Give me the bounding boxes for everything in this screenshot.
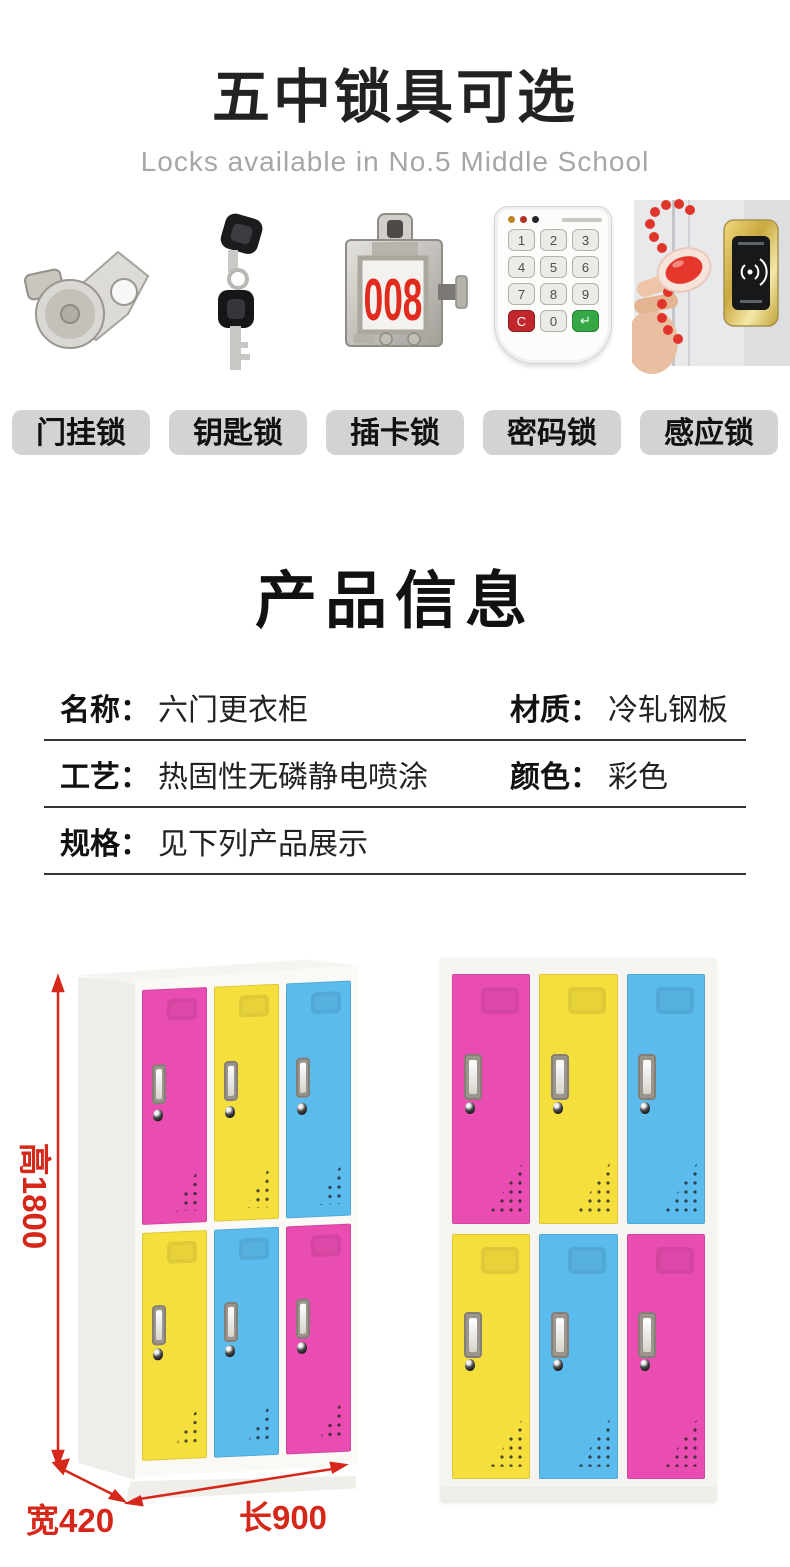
- info-cell-name: 名称： 六门更衣柜: [44, 685, 510, 729]
- info-row: 规格： 见下列产品展示: [44, 808, 746, 875]
- label-slot: [481, 1247, 519, 1274]
- vent-holes: [174, 1164, 201, 1212]
- dimension-height-label: 高1800: [13, 1136, 61, 1256]
- label-slot: [311, 1234, 341, 1257]
- keypad-key-↵: ↵: [572, 310, 599, 332]
- door-handle: [638, 1054, 656, 1100]
- locker-door-blue: [214, 1227, 279, 1458]
- locker-left-doors: [142, 981, 351, 1464]
- keypad-key-6: 6: [572, 256, 599, 278]
- label-slot: [167, 998, 197, 1021]
- lock-label-key: 钥匙锁: [169, 410, 307, 455]
- product-info-table: 名称： 六门更衣柜 材质： 冷轧钢板 工艺： 热固性无磷静电喷涂 颜色： 彩色: [0, 674, 790, 875]
- locks-section: 008 123456789C0↵: [0, 192, 790, 455]
- locker-door-blue: [286, 981, 351, 1219]
- label-slot: [239, 994, 269, 1017]
- vent-holes: [174, 1401, 201, 1448]
- locker-door-pink: [142, 987, 207, 1225]
- lockers-section: 高1800 宽420 长900: [0, 957, 790, 1567]
- lock-label-keypad: 密码锁: [483, 410, 621, 455]
- keypad-key-5: 5: [540, 256, 567, 278]
- door-handle: [464, 1312, 482, 1358]
- keypad-key-7: 7: [508, 283, 535, 305]
- keypad-lock-icon: 123456789C0↵: [474, 192, 632, 388]
- keyhole-icon: [465, 1359, 475, 1371]
- keyhole-icon: [640, 1102, 650, 1114]
- door-handle: [551, 1312, 569, 1358]
- label-slot: [167, 1241, 197, 1264]
- keypad-key-3: 3: [572, 229, 599, 251]
- label-slot: [568, 1247, 606, 1274]
- lock-label-card: 插卡锁: [326, 410, 464, 455]
- keyhole-icon: [553, 1102, 563, 1114]
- keypad-body: 123456789C0↵: [494, 206, 612, 364]
- locker-door-pink: [286, 1224, 351, 1455]
- door-handle: [296, 1298, 310, 1339]
- dimension-width-label: 宽420: [26, 1494, 114, 1542]
- keyhole-icon: [153, 1348, 163, 1360]
- keyhole-icon: [153, 1109, 163, 1121]
- vent-holes: [665, 1162, 698, 1212]
- keyhole-icon: [225, 1106, 235, 1118]
- door-handle: [152, 1064, 166, 1105]
- keypad-key-9: 9: [572, 283, 599, 305]
- vent-holes: [490, 1162, 523, 1212]
- info-cell-spec: 规格： 见下列产品展示: [44, 819, 510, 863]
- locker-door-yellow: [214, 984, 279, 1222]
- keypad-key-2: 2: [540, 229, 567, 251]
- door-handle: [152, 1305, 166, 1346]
- info-row: 工艺： 热固性无磷静电喷涂 颜色： 彩色: [44, 741, 746, 808]
- induction-lock-icon: [632, 192, 790, 388]
- locker-door-yellow: [452, 1234, 530, 1479]
- keyhole-icon: [465, 1102, 475, 1114]
- lock-label-cam-latch: 门挂锁: [12, 410, 150, 455]
- keypad-keys: 123456789C0↵: [508, 229, 611, 332]
- lock-labels-row: 门挂锁 钥匙锁 插卡锁 密码锁 感应锁: [0, 410, 790, 455]
- product-info-heading: 产品信息: [0, 550, 790, 640]
- door-handle: [296, 1058, 310, 1099]
- cam-latch-lock-icon: [0, 192, 158, 388]
- label-slot: [656, 987, 694, 1014]
- vent-holes: [578, 1418, 611, 1467]
- key-lock-icon: [158, 192, 316, 388]
- lock-photos-row: 008 123456789C0↵: [0, 192, 790, 388]
- label-slot: [568, 987, 606, 1014]
- door-handle: [224, 1061, 238, 1102]
- keypad-key-0: 0: [540, 310, 567, 332]
- info-row: 名称： 六门更衣柜 材质： 冷轧钢板: [44, 674, 746, 741]
- lock-label-induction: 感应锁: [640, 410, 778, 455]
- keypad-key-1: 1: [508, 229, 535, 251]
- product-info-section: 产品信息 名称： 六门更衣柜 材质： 冷轧钢板 工艺： 热固性无磷静电喷涂 颜色…: [0, 550, 790, 875]
- label-slot: [481, 987, 519, 1014]
- label-slot: [656, 1247, 694, 1274]
- locker-door-blue: [539, 1234, 617, 1479]
- keyhole-icon: [553, 1359, 563, 1371]
- keypad-key-8: 8: [540, 283, 567, 305]
- label-slot: [311, 991, 341, 1014]
- door-handle: [551, 1054, 569, 1100]
- locker-door-pink: [452, 974, 530, 1224]
- keyhole-icon: [297, 1342, 307, 1354]
- locker-door-yellow: [539, 974, 617, 1224]
- page-title: 五中锁具可选: [0, 50, 790, 134]
- vent-holes: [490, 1418, 523, 1467]
- dimension-length-label: 长900: [218, 1491, 348, 1539]
- locker-door-blue: [627, 974, 705, 1224]
- locker-door-pink: [627, 1234, 705, 1479]
- door-handle: [638, 1312, 656, 1358]
- keyhole-icon: [297, 1102, 307, 1114]
- keyhole-icon: [640, 1359, 650, 1371]
- card-lock-icon: 008: [316, 192, 474, 388]
- vent-holes: [578, 1162, 611, 1212]
- header: 五中锁具可选 Locks available in No.5 Middle Sc…: [0, 0, 790, 178]
- keypad-leds: [508, 216, 611, 223]
- keypad-key-C: C: [508, 310, 535, 332]
- door-handle: [224, 1302, 238, 1343]
- vent-holes: [318, 1157, 345, 1205]
- vent-holes: [665, 1418, 698, 1467]
- locker-right-doors: [452, 974, 705, 1479]
- vent-holes: [318, 1395, 345, 1442]
- vent-holes: [246, 1398, 273, 1445]
- info-cell-color: 颜色： 彩色: [510, 752, 668, 796]
- keyhole-icon: [225, 1345, 235, 1357]
- vent-holes: [246, 1160, 273, 1208]
- info-cell-process: 工艺： 热固性无磷静电喷涂: [44, 752, 510, 796]
- info-cell-material: 材质： 冷轧钢板: [510, 685, 728, 729]
- product-detail-page: 五中锁具可选 Locks available in No.5 Middle Sc…: [0, 0, 790, 1567]
- locker-left-side-panel: [78, 974, 135, 1480]
- locker-door-yellow: [142, 1230, 207, 1461]
- door-handle: [464, 1054, 482, 1100]
- locker-right-front: [440, 958, 717, 1503]
- card-lock-number: 008: [364, 268, 423, 334]
- label-slot: [239, 1237, 269, 1260]
- keypad-key-4: 4: [508, 256, 535, 278]
- page-subtitle: Locks available in No.5 Middle School: [0, 146, 790, 178]
